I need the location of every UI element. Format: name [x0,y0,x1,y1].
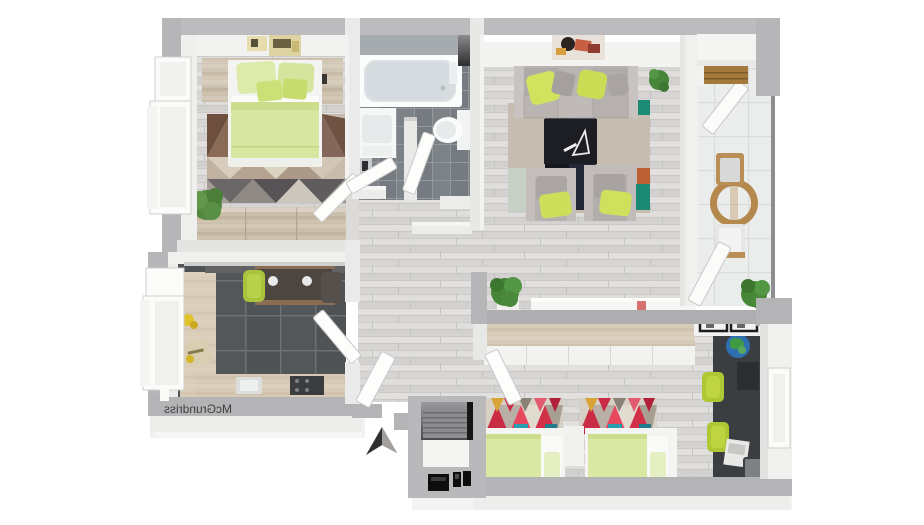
svg-text:McGrundriss: McGrundriss [164,402,232,416]
